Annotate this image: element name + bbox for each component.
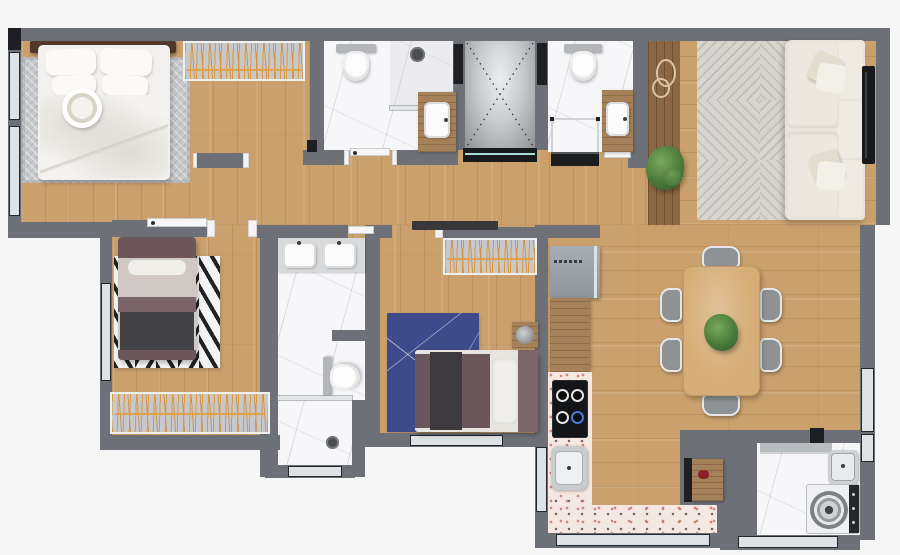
burner-blue-icon xyxy=(571,411,584,424)
wall-ensuite-west xyxy=(310,41,324,152)
faucet-icon xyxy=(297,241,301,245)
burner-icon xyxy=(556,389,569,402)
burner-icon xyxy=(556,411,569,424)
wall-sharedbath-west xyxy=(260,232,278,477)
faucet-icon xyxy=(623,117,627,121)
laundry-passage-jamb xyxy=(810,428,824,443)
kitchen-west-window xyxy=(536,447,547,512)
living-potted-plant xyxy=(646,146,684,190)
wardrobe-rail xyxy=(115,413,265,415)
elevator-jamb-left xyxy=(453,44,463,84)
kitchen-wood-counter xyxy=(550,298,590,372)
kitchen-south-window xyxy=(556,534,710,546)
wall-laundry-north xyxy=(757,430,860,443)
faucet-icon xyxy=(567,466,571,470)
wall-hall-kitchen xyxy=(548,225,600,238)
master-window-2 xyxy=(9,126,20,216)
master-door-leaf xyxy=(147,218,207,227)
master-wardrobe xyxy=(183,41,305,81)
sharedbath-door-leaf xyxy=(348,226,374,234)
chevron-band xyxy=(199,256,220,368)
wall-master-south xyxy=(8,222,112,238)
elevator-threshold xyxy=(463,148,537,162)
hallbath-sink xyxy=(606,102,629,136)
sharedbath-niche-wall xyxy=(332,330,365,341)
fridge-handle-icon xyxy=(554,260,584,263)
bedroom2-window xyxy=(101,283,111,381)
door-jamb xyxy=(392,150,397,165)
faucet-icon xyxy=(841,464,845,468)
bed-duvet xyxy=(40,95,168,178)
shower-window xyxy=(288,466,342,477)
living-sofa xyxy=(785,40,865,220)
laundry-east-window xyxy=(861,434,874,462)
window-corner-frame xyxy=(8,28,21,50)
dining-chair xyxy=(760,338,782,372)
bed-pillow xyxy=(99,48,152,77)
kitchen-sink xyxy=(551,446,587,490)
wall-ensuite-south-a xyxy=(303,150,348,165)
bed-pillow xyxy=(128,260,186,275)
bed-throw xyxy=(120,312,194,350)
bedroom2-single-bed xyxy=(118,237,196,360)
cooktop xyxy=(552,380,588,438)
faucet-icon xyxy=(444,118,448,122)
bedroom3-plant-pot xyxy=(516,326,534,344)
toilet-bowl xyxy=(343,51,369,81)
elevator-x-mark-icon xyxy=(465,41,535,148)
refrigerator xyxy=(550,246,600,298)
sharedbath-sink-right xyxy=(323,242,356,268)
door-handle-icon xyxy=(353,151,357,155)
dining-east-window xyxy=(861,368,874,432)
bed-foot xyxy=(118,350,196,360)
door-jamb xyxy=(193,153,197,168)
elevator-cab xyxy=(465,41,535,148)
washer-knob-icon xyxy=(852,521,855,524)
sofa-pillow xyxy=(816,161,847,192)
elevator-threshold-line xyxy=(465,153,535,155)
toilet-bowl xyxy=(330,364,360,390)
wall-ensuite-south-b xyxy=(392,150,458,165)
wall-bath-bedroom3-divider xyxy=(365,225,380,447)
master-decor-bowl xyxy=(62,88,102,128)
laundry-service-door xyxy=(692,459,723,501)
door-jamb xyxy=(248,220,257,237)
dining-chair xyxy=(702,246,740,268)
shower-head-icon xyxy=(410,47,425,62)
wall-master-stub xyxy=(195,153,245,168)
floor-plan-canvas xyxy=(0,0,900,555)
wall-bedroom2-south xyxy=(100,435,280,450)
washer-control-panel xyxy=(849,485,859,533)
bed-head-pillow xyxy=(118,237,196,258)
dining-chair xyxy=(702,394,740,416)
plant-leaf-cluster xyxy=(664,168,682,186)
master-double-bed xyxy=(38,45,170,180)
washer-knob-icon xyxy=(852,493,855,496)
bedroom3-window xyxy=(410,435,503,446)
door-jamb xyxy=(344,150,349,165)
hallbath-shower-strip xyxy=(551,152,599,166)
rug-patch xyxy=(697,160,760,220)
door-jamb xyxy=(207,220,215,237)
wall-north xyxy=(8,28,890,41)
door-jamb xyxy=(243,153,249,168)
bed-blanket xyxy=(462,354,490,428)
glass-corner xyxy=(550,117,554,121)
dining-chair xyxy=(760,288,782,322)
sharedbath-sink-left xyxy=(283,242,316,268)
bedroom3-wardrobe xyxy=(443,238,537,275)
bedroom3-bed xyxy=(415,350,538,432)
kitchen-terrazzo-counter-horizontal xyxy=(548,505,717,533)
wire-wall-decor-icon xyxy=(650,58,680,100)
glass-corner xyxy=(596,117,600,121)
fridge-door-gap xyxy=(594,246,597,298)
bed-pillow xyxy=(101,73,148,97)
laundry-shelf xyxy=(760,443,832,452)
elevator-jamb-right xyxy=(537,43,547,85)
door-handle-red-icon xyxy=(698,470,709,479)
dining-chair xyxy=(660,288,682,322)
master-window-1 xyxy=(9,52,20,120)
shared-bathroom-shower-floor xyxy=(277,400,352,465)
tv-panel-line xyxy=(865,72,867,158)
sharedbath-toilet xyxy=(323,357,361,397)
washer-knob-icon xyxy=(852,507,855,510)
ensuite-toilet xyxy=(336,44,376,86)
ensuite-door-leaf xyxy=(350,148,390,156)
bed-blanket xyxy=(415,354,430,428)
hallbath-toilet xyxy=(564,44,602,86)
laundry-door-jamb xyxy=(684,458,692,502)
rug-patch xyxy=(697,40,760,100)
wardrobe-rail xyxy=(187,69,300,71)
sofa-pillow xyxy=(815,62,847,94)
bed-headboard xyxy=(518,350,538,432)
dining-chair xyxy=(660,338,682,372)
dining-centerpiece-plant xyxy=(704,314,738,351)
toilet-bowl xyxy=(570,51,596,81)
bedroom3-door-leaf xyxy=(412,221,498,230)
door-handle-icon xyxy=(151,221,155,225)
washing-machine xyxy=(806,484,860,534)
bedroom2-wardrobe xyxy=(110,392,270,434)
wall-hallbath-east xyxy=(633,41,648,168)
bed-dark-throw xyxy=(430,352,462,430)
sharedbath-shower-glass xyxy=(278,396,352,400)
sofa-back-cushion xyxy=(837,101,863,158)
bed-blanket xyxy=(118,297,196,312)
wardrobe-rail xyxy=(447,258,533,260)
ensuite-sink xyxy=(424,102,450,138)
washer-drum-icon xyxy=(810,491,848,529)
tv-panel xyxy=(862,66,875,164)
bed-pillow xyxy=(46,48,97,76)
bed-pillow xyxy=(492,358,518,424)
utility-sink xyxy=(828,450,858,484)
wall-hallbath-south xyxy=(628,152,648,168)
burner-icon xyxy=(571,389,584,402)
shower-drain-icon xyxy=(326,436,339,449)
ensuite-door-jamb xyxy=(307,140,317,152)
faucet-icon xyxy=(337,241,341,245)
laundry-south-window xyxy=(738,536,838,548)
wall-east-upper xyxy=(876,28,890,225)
